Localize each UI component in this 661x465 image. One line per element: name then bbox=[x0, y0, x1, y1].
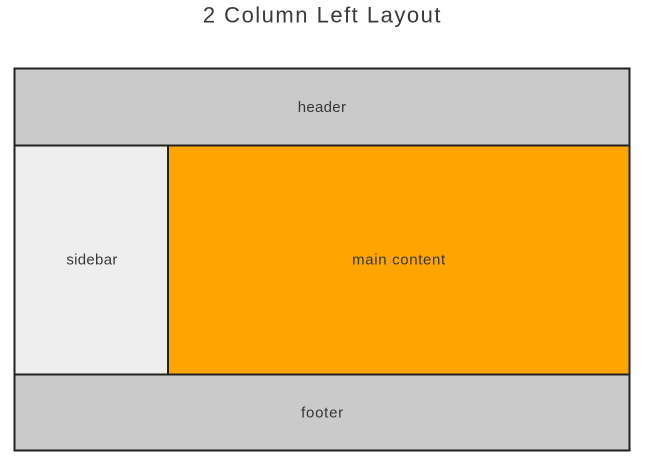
svg-text:2 Column Left Layout: 2 Column Left Layout bbox=[203, 3, 442, 28]
svg-text:main content: main content bbox=[352, 251, 446, 268]
svg-text:sidebar: sidebar bbox=[66, 251, 117, 268]
svg-text:header: header bbox=[298, 99, 347, 116]
svg-text:footer: footer bbox=[301, 404, 344, 421]
